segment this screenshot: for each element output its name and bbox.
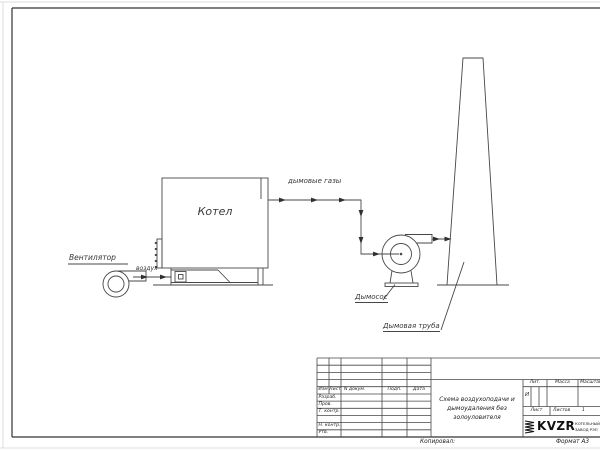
flue-gas-line — [268, 198, 399, 257]
row-n-kontr: Н. контр. — [319, 424, 341, 429]
smoke-exhauster-symbol — [382, 235, 432, 301]
lit-label: Лит. — [523, 381, 547, 386]
fan-symbol — [68, 264, 146, 297]
boiler-label: Котел — [162, 205, 268, 218]
row-utv: Утв. — [319, 431, 329, 436]
row-prov: Пров. — [319, 403, 332, 408]
lit-value: И — [523, 393, 531, 399]
row-t-kontr: Т. контр. — [319, 410, 340, 415]
chimney-label: Дымовая труба — [383, 322, 440, 332]
listov-label: Листов — [553, 409, 570, 414]
boiler-symbol — [153, 178, 273, 285]
company-name-line1: КОТЕЛЬНЫЙ — [575, 421, 600, 427]
drawing-frame — [12, 8, 600, 437]
kvzr-logo-text: KVZR — [537, 419, 575, 433]
air-flow-line — [133, 275, 171, 280]
air-label: воздух — [136, 265, 158, 272]
col-list: Лист — [329, 388, 341, 393]
col-data: Дата — [407, 388, 431, 393]
kopiroval-label: Копировал: — [420, 440, 455, 446]
list-label: Лист — [523, 409, 550, 414]
drawing-sheet: Вентилятор воздух Котел дымовые газы Дым… — [0, 0, 600, 450]
smoke-exhauster-label: Дымосос — [355, 293, 388, 303]
massa-label: Масса — [547, 381, 578, 386]
masshtab-label: Масштаб — [578, 381, 600, 386]
exhauster-outlet-line — [432, 237, 452, 242]
kvzr-logo-icon — [525, 421, 534, 433]
row-razrab: Разраб. — [319, 396, 337, 401]
flue-gas-label: дымовые газы — [288, 177, 341, 185]
col-podp: Подп. — [382, 388, 407, 393]
document-title: Схема воздухоподачи и дымоудаления без з… — [432, 380, 522, 436]
format-label: Формат А3 — [556, 440, 589, 446]
company-name: КОТЕЛЬНЫЙ ЗАВОД РЭП — [575, 421, 600, 432]
col-n-dokum: N докум. — [344, 388, 365, 393]
col-izm: Изм — [317, 388, 329, 393]
listov-value: 1 — [582, 409, 585, 414]
chimney-symbol — [437, 58, 509, 330]
fan-label: Вентилятор — [69, 253, 116, 262]
company-name-line2: ЗАВОД РЭП — [575, 427, 600, 433]
